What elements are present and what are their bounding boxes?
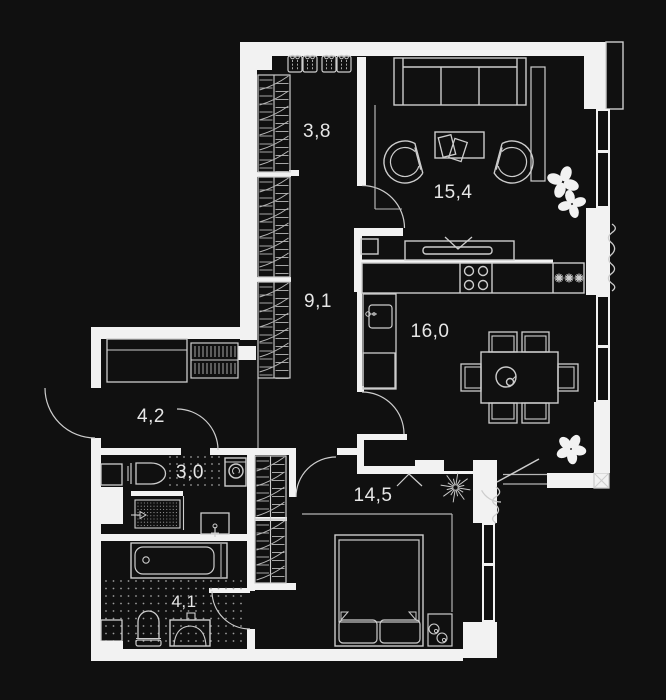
- svg-text:4,1: 4,1: [171, 592, 196, 611]
- svg-text:14,5: 14,5: [354, 485, 393, 506]
- svg-text:3,0: 3,0: [176, 462, 204, 483]
- svg-text:3,8: 3,8: [303, 121, 331, 142]
- svg-text:9,1: 9,1: [304, 291, 332, 312]
- svg-text:16,0: 16,0: [411, 321, 450, 342]
- svg-text:4,2: 4,2: [137, 406, 165, 427]
- svg-text:15,4: 15,4: [434, 182, 473, 203]
